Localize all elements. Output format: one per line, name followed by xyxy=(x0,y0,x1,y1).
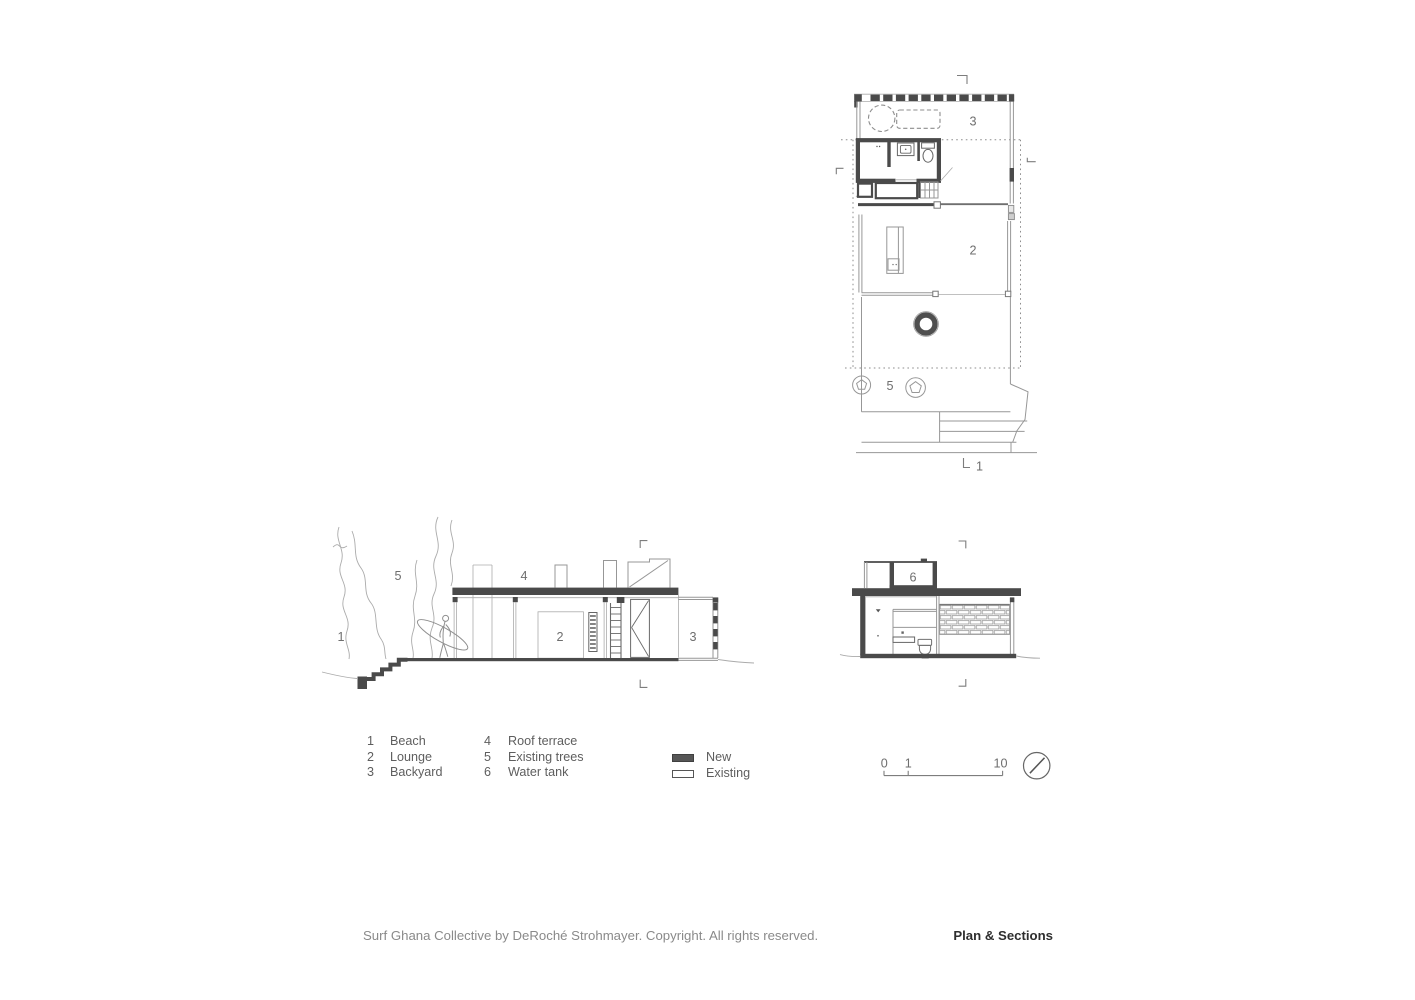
legend-label: Water tank xyxy=(508,765,584,781)
material-label: New xyxy=(706,750,731,766)
section1-right-wall xyxy=(713,597,718,658)
material-label: Existing xyxy=(706,766,750,782)
louver-panel xyxy=(589,613,597,652)
roof-terrace-blocks xyxy=(555,559,670,588)
material-key: New Existing xyxy=(672,750,750,782)
section-cut-markers xyxy=(836,76,1035,468)
legend-label: Beach xyxy=(390,734,443,750)
legend-item-roof-terrace: 4 Roof terrace xyxy=(484,734,584,750)
tap-mark xyxy=(901,631,903,633)
floor-slab xyxy=(860,654,1016,658)
scale-tick-0: 0 xyxy=(881,757,888,771)
ground-slab xyxy=(407,658,679,661)
section1-label-lounge: 2 xyxy=(556,630,563,644)
water-tank xyxy=(864,559,937,590)
legend-column-1: 1 Beach 2 Lounge 3 Backyard xyxy=(367,734,443,781)
roof-slab xyxy=(852,588,1021,596)
scale-bar: 0 1 10 xyxy=(881,757,1008,776)
legend-item-existing-trees: 5 Existing trees xyxy=(484,750,584,766)
section1-label-roof-terrace: 4 xyxy=(520,569,527,583)
section-trees xyxy=(333,517,453,659)
roof-slab xyxy=(452,588,678,595)
shower-head-mark xyxy=(876,609,881,612)
ladder xyxy=(611,603,622,659)
scale-tick-10: 10 xyxy=(993,757,1007,771)
scale-tick-1: 1 xyxy=(905,757,912,771)
legend-label: Backyard xyxy=(390,765,443,781)
breeze-block-wall xyxy=(940,605,1010,635)
shower-mark xyxy=(879,146,880,147)
wall-cut xyxy=(860,596,865,655)
section2-label-water-tank: 6 xyxy=(909,571,916,585)
existing-swatch-icon xyxy=(672,770,694,778)
section-cross: 6 xyxy=(840,541,1040,686)
shower-mark xyxy=(876,146,877,147)
legend-num: 1 xyxy=(367,734,390,750)
door-swing xyxy=(941,168,953,182)
plan-counter xyxy=(887,227,903,273)
section1-label-beach: 1 xyxy=(337,630,344,644)
floor-plan: 1 3 xyxy=(836,76,1037,474)
north-arrow-icon xyxy=(1023,753,1049,779)
legend-num: 4 xyxy=(484,734,508,750)
plan-label-trees: 5 xyxy=(886,379,893,393)
tree-icon xyxy=(906,378,926,398)
bench-dashed xyxy=(897,110,940,128)
legend-item-beach: 1 Beach xyxy=(367,734,443,750)
surfer-figure xyxy=(414,615,471,658)
material-new: New xyxy=(672,750,750,766)
window-jamb xyxy=(1010,168,1014,182)
legend-num: 5 xyxy=(484,750,508,766)
plan-mid-wall xyxy=(858,202,1014,220)
section1-label-trees: 5 xyxy=(394,569,401,583)
legend-num: 2 xyxy=(367,750,390,766)
plan-terrain xyxy=(856,297,1037,453)
plan-label-lounge: 2 xyxy=(969,244,976,258)
sheet-title: Plan & Sections xyxy=(850,928,1053,943)
legend-column-2: 4 Roof terrace 5 Existing trees 6 Water … xyxy=(484,734,584,781)
planter-ring-icon xyxy=(914,312,939,337)
legend-label: Roof terrace xyxy=(508,734,584,750)
copyright-text: Surf Ghana Collective by DeRoché Strohma… xyxy=(363,928,818,943)
legend-label: Lounge xyxy=(390,750,443,766)
legend-num: 6 xyxy=(484,765,508,781)
plan-bench-stairs xyxy=(858,182,938,198)
legend-num: 3 xyxy=(367,765,390,781)
beach-steps xyxy=(358,660,408,689)
legend-label: Existing trees xyxy=(508,750,584,766)
legend-item-lounge: 2 Lounge xyxy=(367,750,443,766)
section-long: 4 2 xyxy=(322,517,754,689)
section1-label-backyard: 3 xyxy=(689,630,696,644)
plan-label-backyard: 3 xyxy=(969,115,976,129)
plan-section-number: 1 xyxy=(976,460,983,474)
round-table-dashed xyxy=(869,105,895,131)
drawing-svg: 1 3 xyxy=(0,0,1415,1000)
legend-item-backyard: 3 Backyard xyxy=(367,765,443,781)
material-existing: Existing xyxy=(672,766,750,782)
legend-item-water-tank: 6 Water tank xyxy=(484,765,584,781)
braced-panel xyxy=(631,599,650,657)
drawing-sheet: 1 3 xyxy=(0,0,1415,1000)
new-swatch-icon xyxy=(672,754,694,762)
section2-bathroom xyxy=(876,609,937,658)
plan-lounge-walls xyxy=(859,215,1011,297)
